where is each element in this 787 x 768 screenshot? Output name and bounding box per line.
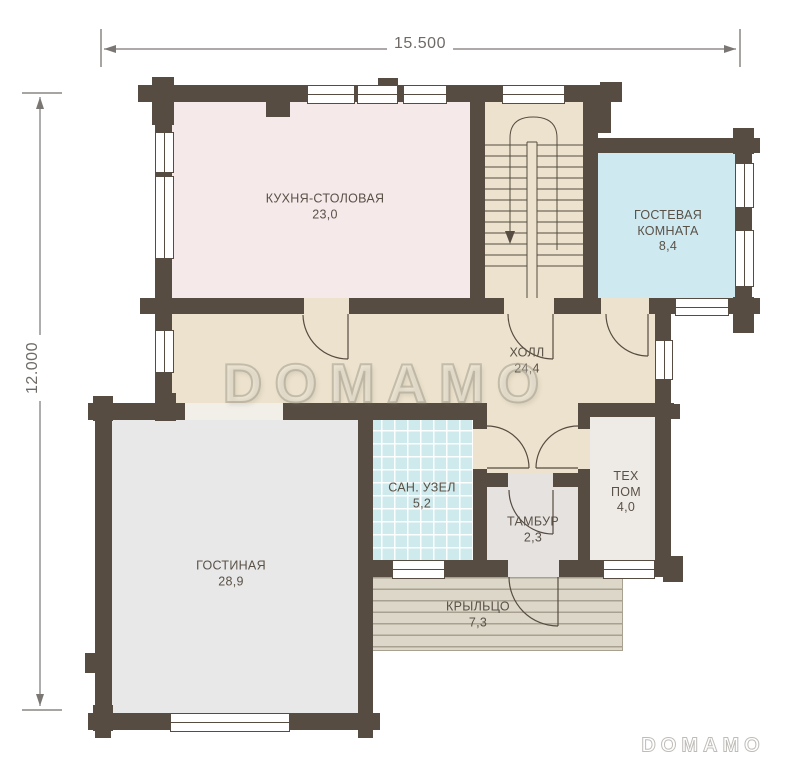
room-area: 23,0 (266, 207, 385, 223)
room-name: ТЕХ ПОМ (601, 469, 651, 500)
room-name: ТАМБУР (507, 515, 559, 531)
dimension-height-label: 12.000 (24, 335, 42, 401)
room-label-vestibule: ТАМБУР 2,3 (507, 515, 559, 546)
room-name: ГОСТЕВАЯ КОМНАТА (621, 208, 715, 239)
room-label-bathroom: САН. УЗЕЛ 5,2 (388, 481, 456, 512)
room-area: 28,9 (196, 574, 266, 590)
room-name: КРЫЛЬЦО (446, 600, 510, 616)
room-label-kitchen: КУХНЯ-СТОЛОВАЯ 23,0 (266, 192, 385, 223)
room-area: 5,2 (388, 496, 456, 512)
staircase (485, 117, 583, 298)
room-label-tech: ТЕХ ПОМ 4,0 (601, 469, 651, 516)
entrance-door (509, 577, 558, 626)
room-area: 2,3 (507, 530, 559, 546)
dimension-width-label: 15.500 (387, 35, 453, 53)
room-label-guest: ГОСТЕВАЯ КОМНАТА 8,4 (621, 208, 715, 255)
watermark-corner: DOMAMO (641, 735, 764, 758)
room-name: САН. УЗЕЛ (388, 481, 456, 497)
room-name: ГОСТИНАЯ (196, 559, 266, 575)
room-area: 7,3 (446, 615, 510, 631)
bathroom-door (487, 426, 529, 468)
stair-direction-arrow (505, 231, 515, 244)
room-name: КУХНЯ-СТОЛОВАЯ (266, 192, 385, 208)
watermark-center: DOMAMO (223, 351, 552, 415)
stair-walkline (510, 117, 557, 250)
room-area: 8,4 (621, 239, 715, 255)
tech-room-door (536, 426, 578, 468)
room-label-porch: КРЫЛЬЦО 7,3 (446, 600, 510, 631)
guest-room-door (606, 314, 648, 356)
room-label-living: ГОСТИНАЯ 28,9 (196, 559, 266, 590)
floor-plan: 15.500 12.000 КУХНЯ-СТОЛОВАЯ 23,0 ХОЛЛ 2… (0, 0, 787, 768)
room-area: 4,0 (601, 500, 651, 516)
